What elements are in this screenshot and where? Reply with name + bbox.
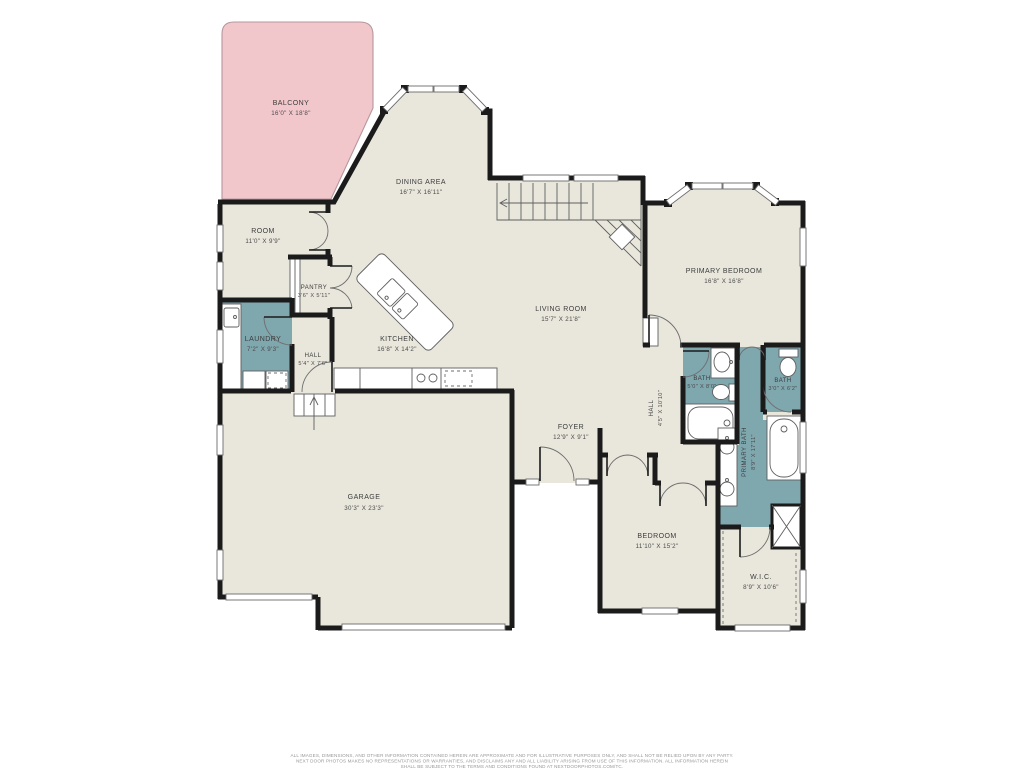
svg-text:KITCHEN: KITCHEN [380,336,414,343]
floor-plan-svg: BALCONY 16'0" X 18'8" DINING AREA 16'7" … [0,0,1024,768]
window [217,262,223,290]
svg-text:30'3" X 23'3": 30'3" X 23'3" [344,505,384,512]
window [217,225,223,252]
svg-text:W.I.C.: W.I.C. [750,574,772,581]
window [434,86,459,92]
svg-text:16'8" X 16'8": 16'8" X 16'8" [704,278,744,285]
svg-text:HALL: HALL [649,399,655,416]
svg-text:PRIMARY BATH: PRIMARY BATH [742,427,748,477]
window [574,175,618,181]
svg-text:GARAGE: GARAGE [348,494,381,501]
svg-text:HALL: HALL [305,353,322,359]
svg-text:FOYER: FOYER [558,424,584,431]
window [800,570,806,603]
dryer [266,371,288,390]
svg-text:12'9" X 9'1": 12'9" X 9'1" [553,434,589,441]
window [800,228,806,266]
window-sidelight [576,479,589,485]
svg-text:7'2" X 9'3": 7'2" X 9'3" [247,346,279,353]
window [800,422,806,473]
svg-text:LIVING ROOM: LIVING ROOM [535,306,587,313]
svg-text:LAUNDRY: LAUNDRY [245,336,281,343]
svg-text:BATH: BATH [693,376,710,382]
fireplace [643,318,658,346]
svg-text:DINING AREA: DINING AREA [396,179,446,186]
svg-text:5'4" X 7'6": 5'4" X 7'6" [298,361,327,367]
window [217,425,223,455]
svg-text:8'9" X 10'6": 8'9" X 10'6" [743,584,779,591]
svg-text:15'7" X 21'8": 15'7" X 21'8" [541,316,581,323]
svg-text:4'5" X 10'10": 4'5" X 10'10" [658,390,664,426]
svg-text:16'0" X 18'8": 16'0" X 18'8" [271,110,311,117]
window [642,608,678,614]
svg-text:PANTRY: PANTRY [301,285,327,291]
svg-text:BEDROOM: BEDROOM [637,533,676,540]
svg-text:16'8" X 14'2": 16'8" X 14'2" [377,346,417,353]
svg-text:BATH: BATH [774,378,791,384]
garage-door [342,624,505,630]
window [692,183,722,189]
window [723,183,753,189]
svg-text:NEXT DOOR PHOTOS MAKES NO REPR: NEXT DOOR PHOTOS MAKES NO REPRESENTATION… [296,759,728,764]
bath2-toilet-tank [779,349,798,357]
svg-text:PRIMARY BEDROOM: PRIMARY BEDROOM [686,268,763,275]
window [217,550,223,580]
svg-text:11'10" X 15'2": 11'10" X 15'2" [636,543,679,550]
washer [243,371,265,390]
svg-text:5'0" X 8'0": 5'0" X 8'0" [687,384,716,390]
svg-text:BALCONY: BALCONY [273,100,310,107]
garage-door [226,594,312,600]
kitchen-counter [334,368,497,389]
footer-disclaimer: ALL IMAGES, DIMENSIONS, AND OTHER INFORM… [290,753,733,768]
svg-text:8'9" X 17'11": 8'9" X 17'11" [751,434,757,470]
window [408,86,433,92]
window [523,175,569,181]
svg-text:16'7" X 16'11": 16'7" X 16'11" [400,189,443,196]
svg-text:ROOM: ROOM [251,228,275,235]
svg-text:ALL IMAGES, DIMENSIONS, AND OT: ALL IMAGES, DIMENSIONS, AND OTHER INFORM… [290,753,733,758]
svg-text:SHALL BE SUBJECT TO THE TERMS: SHALL BE SUBJECT TO THE TERMS AND CONDIT… [401,764,624,768]
svg-text:3'0" X 6'2": 3'0" X 6'2" [768,386,797,392]
window [735,625,790,631]
window [217,330,223,363]
window-sidelight [526,479,539,485]
svg-text:11'0" X 9'9": 11'0" X 9'9" [245,238,280,245]
svg-text:3'6" X 5'11": 3'6" X 5'11" [298,293,330,299]
floor-plan-page: BALCONY 16'0" X 18'8" DINING AREA 16'7" … [0,0,1024,768]
bath2-toilet [780,358,796,377]
